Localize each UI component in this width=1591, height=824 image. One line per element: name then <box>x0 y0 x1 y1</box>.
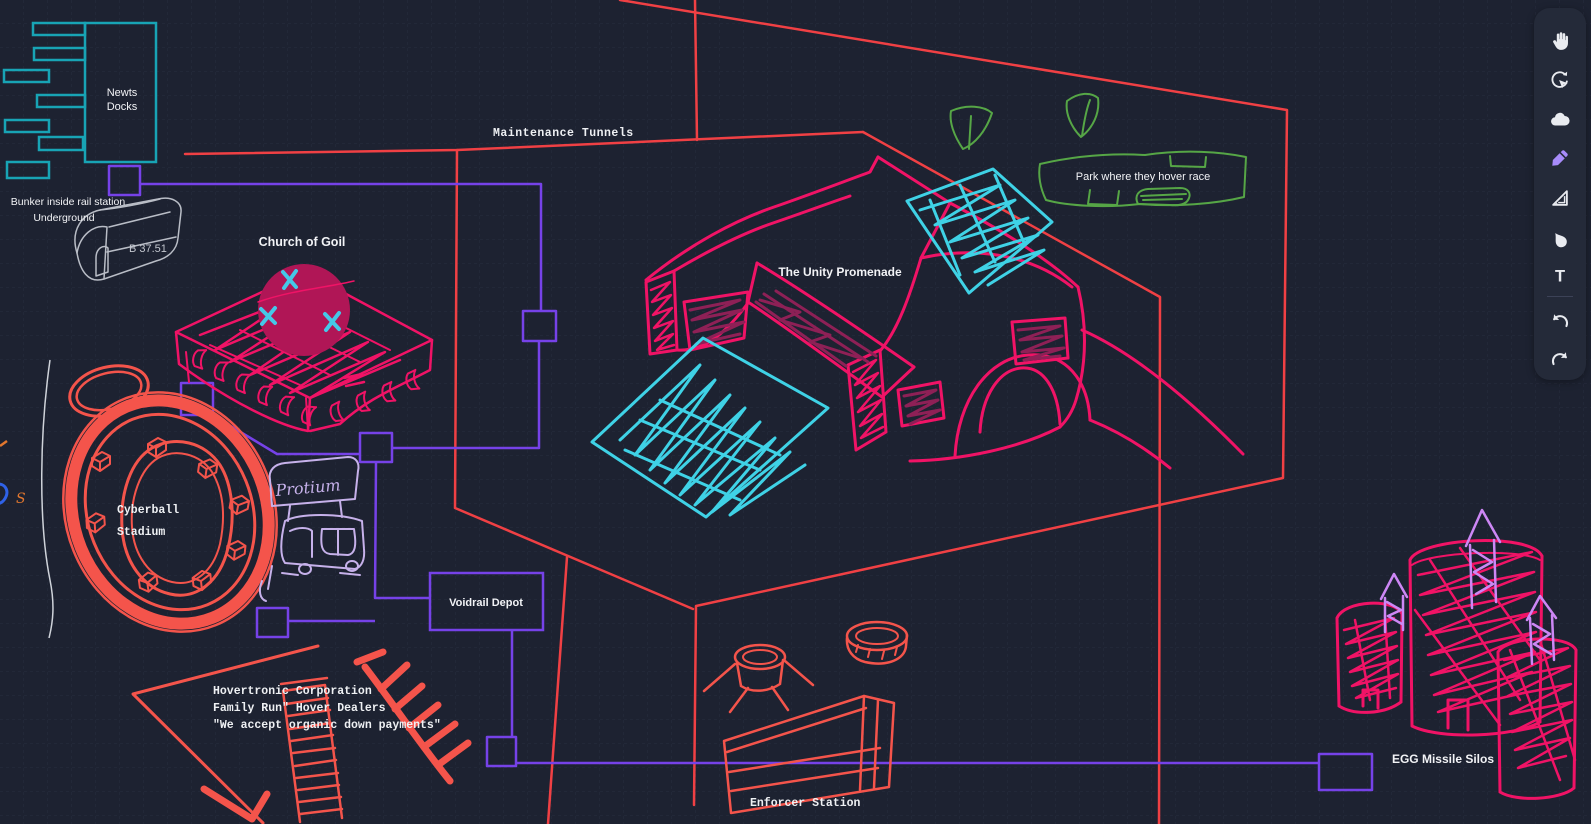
hovertronic-label[interactable]: Hovertronic Corporation <box>213 685 372 698</box>
egg-missile-silos-label[interactable]: EGG Missile Silos <box>1392 752 1494 766</box>
newts-docks-label[interactable]: Docks <box>107 101 138 113</box>
svg-text:T: T <box>1555 268 1565 286</box>
cloud-icon <box>1549 109 1571 131</box>
hovertronic-label[interactable]: "We accept organic down payments" <box>213 719 441 732</box>
maintenance-tunnels-label[interactable]: Maintenance Tunnels <box>493 127 634 140</box>
voidrail-depot-label: Voidrail Depot <box>449 597 523 609</box>
pen-tool-button[interactable] <box>1542 141 1578 175</box>
edge-scribble-letter: S <box>16 491 26 507</box>
text-tool-icon: T <box>1549 265 1571 287</box>
enforcer-station-label[interactable]: Enforcer Station <box>750 797 861 810</box>
whiteboard-app: Maintenance Tunnels Voidrail Depot Newts… <box>0 0 1591 824</box>
hover-race-park-label[interactable]: Park where they hover race <box>1076 171 1211 183</box>
drawing-canvas[interactable]: Maintenance Tunnels Voidrail Depot Newts… <box>0 0 1591 824</box>
rotate-select-icon <box>1549 69 1571 91</box>
bunker-label[interactable]: Bunker inside rail station <box>11 196 126 208</box>
canvas-grid <box>0 0 1591 824</box>
rotate-select-tool-button[interactable] <box>1542 63 1578 97</box>
hand-icon <box>1549 30 1571 52</box>
set-square-icon <box>1549 187 1571 209</box>
droplet-tool-button[interactable] <box>1542 222 1578 256</box>
droplet-icon <box>1549 228 1571 250</box>
cloud-tool-button[interactable] <box>1542 103 1578 137</box>
hovertronic-label[interactable]: Family Run" Hover Dealers <box>213 702 386 715</box>
hand-tool-button[interactable] <box>1542 24 1578 58</box>
cyberball-stadium-label[interactable]: Stadium <box>117 526 165 539</box>
redo-button[interactable] <box>1542 343 1578 377</box>
church-of-goil-label[interactable]: Church of Goil <box>259 235 346 249</box>
cyberball-stadium-label[interactable]: Cyberball <box>117 504 179 517</box>
set-square-tool-button[interactable] <box>1542 181 1578 215</box>
text-tool-button[interactable]: T <box>1542 259 1578 293</box>
unity-promenade-label[interactable]: The Unity Promenade <box>778 265 902 279</box>
redo-icon <box>1549 349 1571 371</box>
bunker-code-label[interactable]: B 37.51 <box>129 243 167 255</box>
pen-icon <box>1549 147 1571 169</box>
undo-button[interactable] <box>1542 305 1578 339</box>
toolbar-divider <box>1547 296 1573 297</box>
undo-icon <box>1549 311 1571 333</box>
bunker-label[interactable]: Underground <box>33 212 94 224</box>
newts-docks-label[interactable]: Newts <box>107 87 138 99</box>
tool-palette: T <box>1534 8 1586 380</box>
